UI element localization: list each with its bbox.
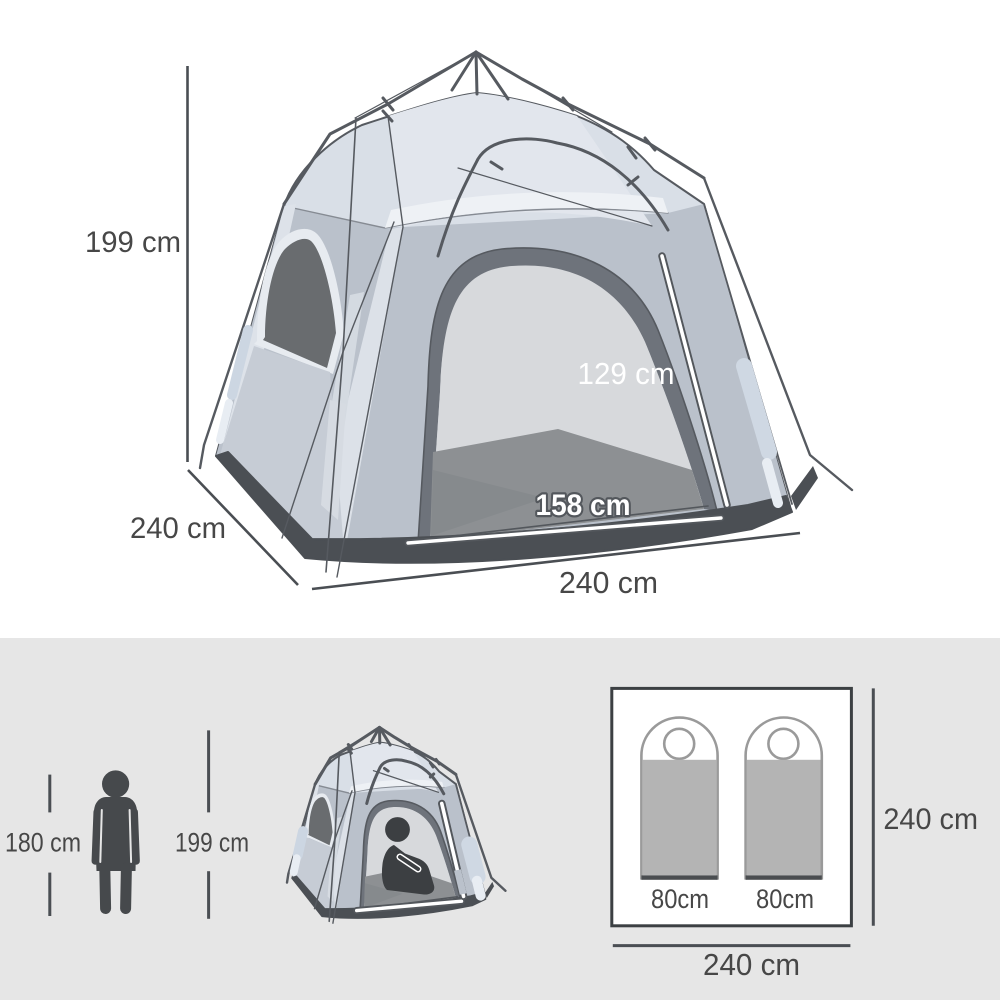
svg-text:240 cm: 240 cm (130, 512, 226, 545)
svg-text:240 cm: 240 cm (703, 947, 800, 982)
svg-text:240 cm: 240 cm (883, 803, 978, 836)
svg-text:180 cm: 180 cm (5, 828, 81, 858)
svg-text:199 cm: 199 cm (175, 828, 249, 858)
svg-text:199 cm: 199 cm (85, 226, 181, 259)
svg-text:158 cm: 158 cm (536, 489, 631, 522)
svg-text:80cm: 80cm (756, 884, 814, 914)
svg-text:80cm: 80cm (651, 884, 709, 914)
svg-text:240 cm: 240 cm (559, 565, 658, 600)
svg-text:129 cm: 129 cm (578, 356, 675, 391)
